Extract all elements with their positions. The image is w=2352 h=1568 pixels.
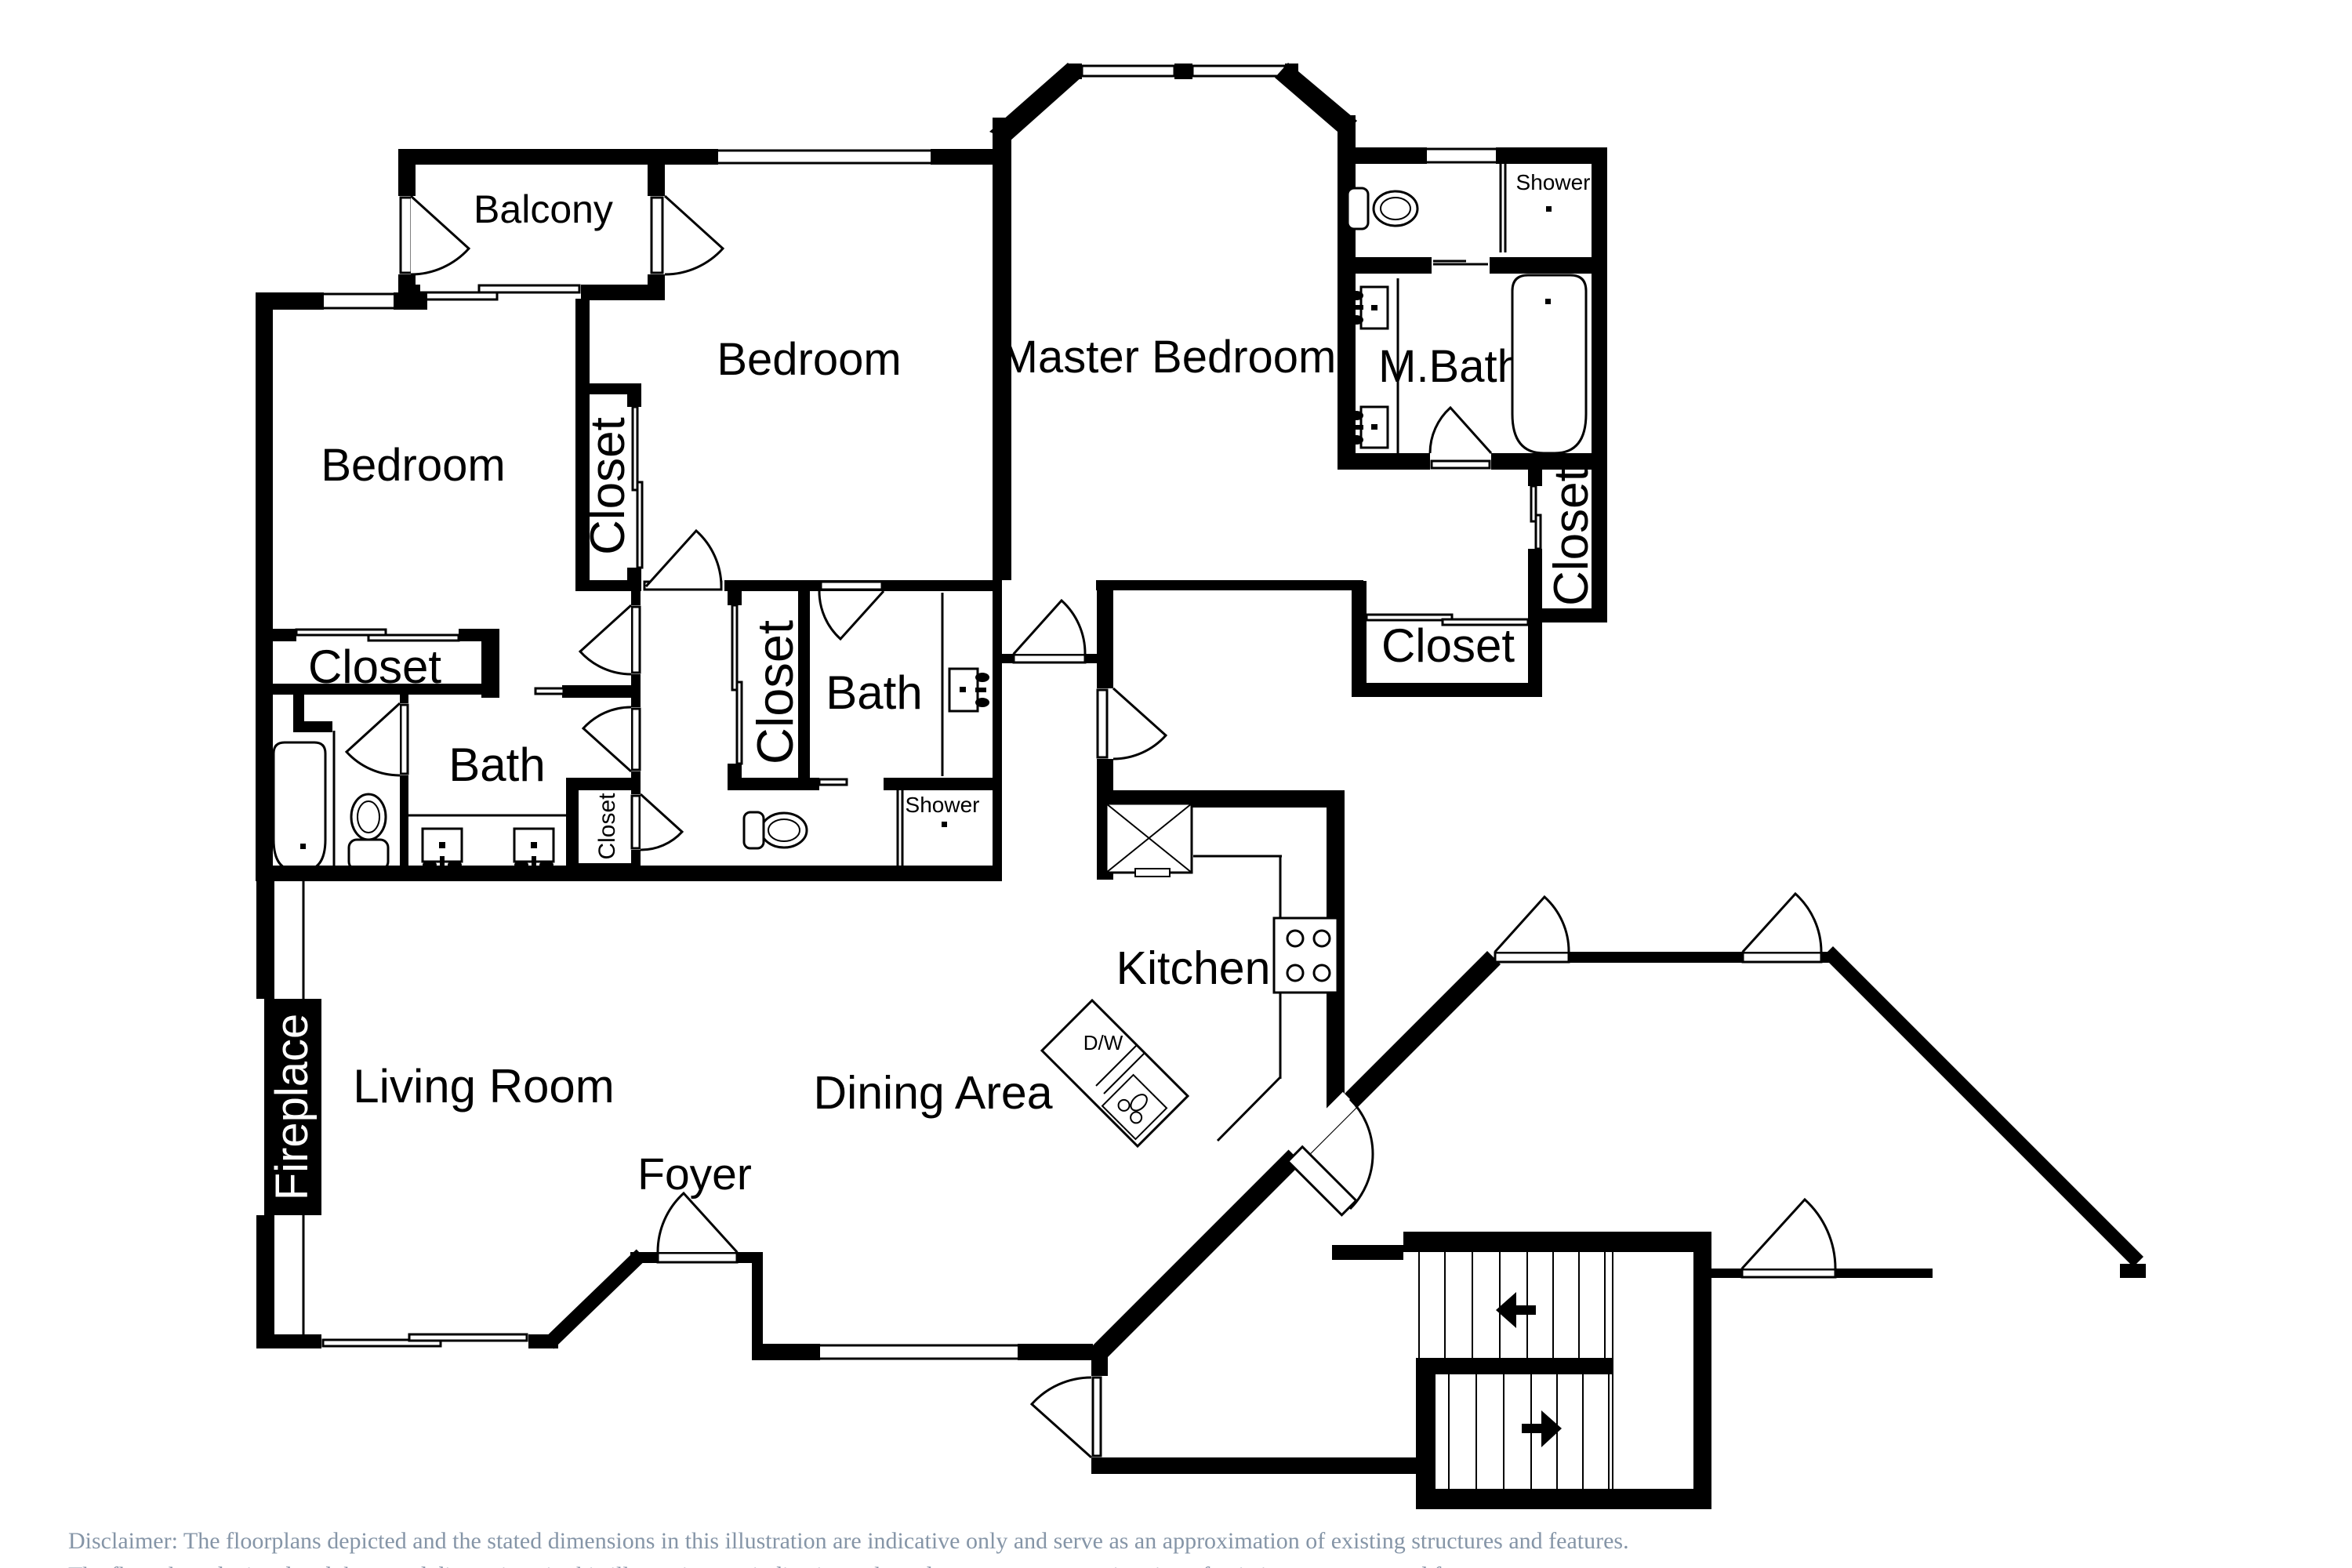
svg-text:M.Bath: M.Bath: [1378, 341, 1523, 392]
svg-text:Closet: Closet: [308, 641, 441, 693]
svg-text:Balcony: Balcony: [474, 187, 613, 231]
svg-text:The floorplans depicted and th: The floorplans depicted and the stated d…: [68, 1563, 1514, 1568]
svg-text:Kitchen: Kitchen: [1116, 942, 1271, 994]
svg-text:Closet: Closet: [581, 417, 635, 555]
svg-text:Dining Area: Dining Area: [813, 1067, 1052, 1119]
svg-text:Bedroom: Bedroom: [321, 440, 505, 491]
svg-text:Shower: Shower: [1516, 170, 1591, 194]
svg-text:Closet: Closet: [594, 793, 620, 860]
svg-text:Closet: Closet: [746, 620, 804, 764]
svg-text:Foyer: Foyer: [637, 1149, 752, 1200]
svg-text:Closet: Closet: [1544, 468, 1599, 606]
svg-text:Living Room: Living Room: [353, 1060, 615, 1112]
svg-text:Master Bedroom: Master Bedroom: [1000, 332, 1337, 383]
svg-text:Fireplace: Fireplace: [267, 1014, 318, 1201]
svg-text:Shower: Shower: [906, 793, 980, 817]
svg-text:D/W: D/W: [1083, 1031, 1123, 1054]
svg-text:Closet: Closet: [1381, 619, 1515, 672]
svg-text:Bath: Bath: [826, 666, 922, 719]
svg-text:Disclaimer: The floorplans dep: Disclaimer: The floorplans depicted and …: [68, 1528, 1629, 1554]
svg-text:Bedroom: Bedroom: [717, 334, 901, 385]
svg-text:Bath: Bath: [448, 739, 545, 791]
